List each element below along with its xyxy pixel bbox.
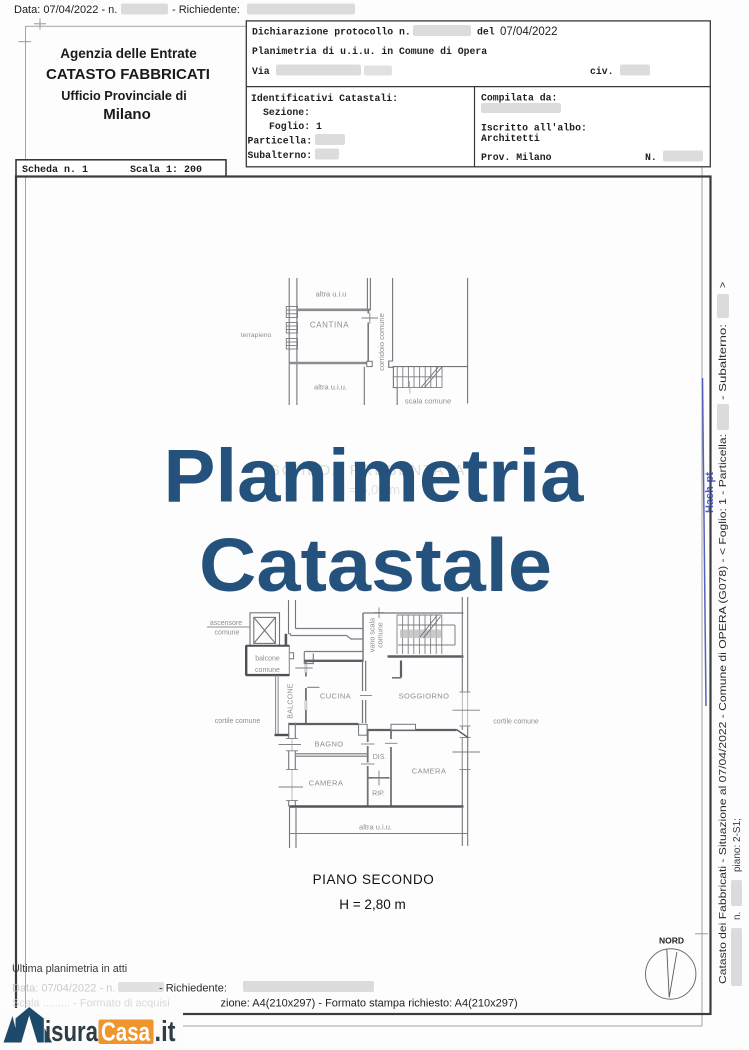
svg-text:Dichiarazione protocollo n.: Dichiarazione protocollo n. [252, 27, 411, 38]
svg-text:07/04/2022: 07/04/2022 [500, 26, 558, 38]
svg-text:corridoio comune: corridoio comune [377, 313, 386, 371]
svg-text:DIS.: DIS. [373, 754, 387, 761]
svg-text:scala comune: scala comune [405, 397, 451, 406]
svg-text:Prov. Milano: Prov. Milano [481, 152, 552, 163]
svg-text:SOGGIORNO: SOGGIORNO [399, 692, 450, 701]
svg-text:Catastale: Catastale [199, 523, 552, 607]
svg-text:.it: .it [155, 1016, 176, 1048]
svg-text:altra u.i.u.: altra u.i.u. [314, 383, 347, 392]
svg-text:Scala ......... - Formato di a: Scala ......... - Formato di acquisi [12, 998, 170, 1010]
svg-text:zione: A4(210x297) - Formato: zione: A4(210x297) - Formato stampa rich… [221, 998, 518, 1010]
svg-text:Compilata da:: Compilata da: [481, 93, 557, 104]
svg-text:CANTINA: CANTINA [310, 321, 349, 330]
svg-text:BAGNO: BAGNO [314, 740, 343, 749]
svg-text:Data: 07/04/2022 - n.: Data: 07/04/2022 - n. [14, 4, 117, 16]
svg-text:Scala 1: 200: Scala 1: 200 [130, 164, 202, 176]
svg-text:BALCONE: BALCONE [288, 683, 295, 719]
svg-text:- Richiedente:: - Richiedente: [159, 983, 227, 995]
svg-text:H = 2,80 m: H = 2,80 m [339, 897, 405, 912]
svg-text:n.: n. [732, 912, 743, 920]
svg-text:PIANO SECONDO: PIANO SECONDO [313, 872, 435, 887]
svg-text:del: del [477, 27, 495, 38]
svg-text:Particella:: Particella: [248, 136, 313, 147]
svg-text:cortile comune: cortile comune [215, 718, 261, 725]
svg-text:Ultima planimetria in atti: Ultima planimetria in atti [12, 963, 127, 975]
svg-text:altra u.i.u: altra u.i.u [316, 290, 347, 299]
svg-text:Sezione:: Sezione: [263, 107, 310, 118]
svg-text:civ.: civ. [590, 66, 614, 77]
svg-text:Iscritto all'albo:: Iscritto all'albo: [481, 123, 587, 134]
svg-text:Scheda n. 1: Scheda n. 1 [22, 164, 88, 176]
svg-text:Planimetria: Planimetria [164, 434, 585, 518]
svg-text:Casa: Casa [101, 1017, 150, 1047]
svg-text:Architetti: Architetti [481, 133, 540, 144]
svg-text:Milano: Milano [103, 106, 151, 123]
svg-text:Hash-pt: Hash-pt [704, 472, 716, 513]
svg-text:Agenzia delle Entrate: Agenzia delle Entrate [60, 46, 197, 61]
svg-text:N.: N. [645, 152, 657, 163]
svg-text:CUCINA: CUCINA [320, 692, 351, 701]
svg-text:terrapieno: terrapieno [241, 332, 272, 339]
svg-text:- Richiedente:: - Richiedente: [172, 4, 240, 16]
svg-text:Planimetria di u.i.u. in Comun: Planimetria di u.i.u. in Comune di Opera [252, 46, 487, 57]
svg-text:altra u.i.u.: altra u.i.u. [359, 823, 392, 832]
svg-text:comune: comune [376, 622, 385, 648]
svg-text:CAMERA: CAMERA [309, 779, 344, 788]
svg-text:balcone: balcone [255, 656, 280, 663]
svg-text:piano: 2-S1;: piano: 2-S1; [732, 818, 743, 872]
svg-text:>: > [717, 282, 729, 288]
svg-text:RIP.: RIP. [372, 791, 385, 798]
svg-text:Via: Via [252, 66, 270, 77]
svg-text:Identificativi Catastali:: Identificativi Catastali: [251, 93, 398, 104]
svg-text:Catasto dei Fabbricati - Situa: Catasto dei Fabbricati - Situazione al 0… [717, 434, 729, 984]
svg-text:- Subalterno:: - Subalterno: [717, 324, 729, 400]
svg-text:CATASTO FABBRICATI: CATASTO FABBRICATI [46, 66, 210, 83]
svg-text:cortile comune: cortile comune [493, 719, 539, 726]
svg-text:isura: isura [45, 1016, 99, 1048]
svg-text:Foglio: 1: Foglio: 1 [269, 121, 322, 132]
svg-text:Subalterno:: Subalterno: [248, 150, 313, 161]
svg-text:comune: comune [255, 667, 280, 674]
svg-text:CAMERA: CAMERA [412, 767, 447, 776]
svg-text:NORD: NORD [659, 936, 684, 946]
svg-text:ascensore: ascensore [210, 620, 242, 627]
svg-text:Ufficio Provinciale di: Ufficio Provinciale di [61, 89, 187, 103]
svg-text:Data: 07/04/2022 - n.: Data: 07/04/2022 - n. [12, 983, 115, 995]
svg-text:comune: comune [215, 630, 240, 637]
